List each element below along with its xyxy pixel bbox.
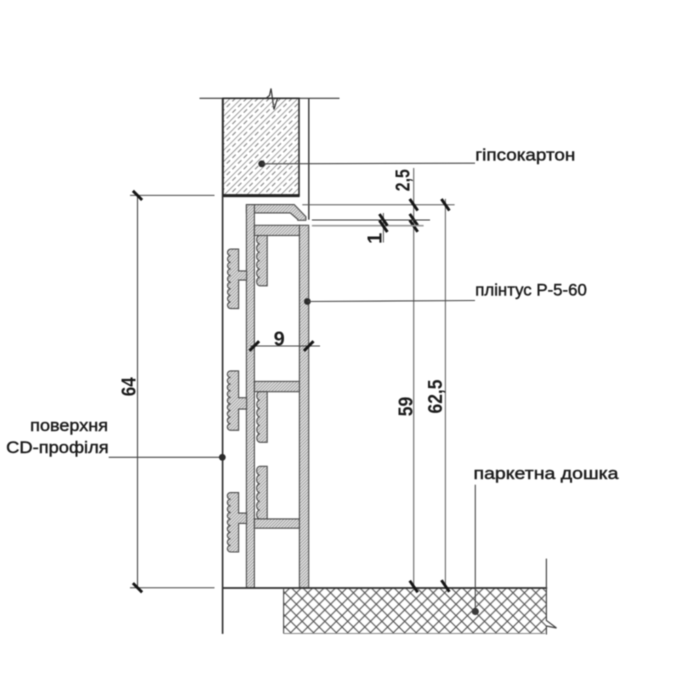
svg-text:64: 64: [119, 377, 141, 397]
svg-text:59: 59: [396, 397, 418, 417]
svg-text:поверхня: поверхня: [30, 416, 108, 435]
svg-text:паркетна дошка: паркетна дошка: [474, 464, 620, 483]
svg-text:гіпсокартон: гіпсокартон: [475, 146, 575, 165]
svg-text:62,5: 62,5: [425, 380, 447, 414]
svg-text:9: 9: [274, 329, 285, 351]
svg-text:CD-профіля: CD-профіля: [6, 438, 109, 457]
svg-text:1: 1: [364, 233, 386, 244]
svg-text:2,5: 2,5: [393, 169, 415, 191]
svg-text:плінтус Р-5-60: плінтус Р-5-60: [475, 281, 587, 300]
